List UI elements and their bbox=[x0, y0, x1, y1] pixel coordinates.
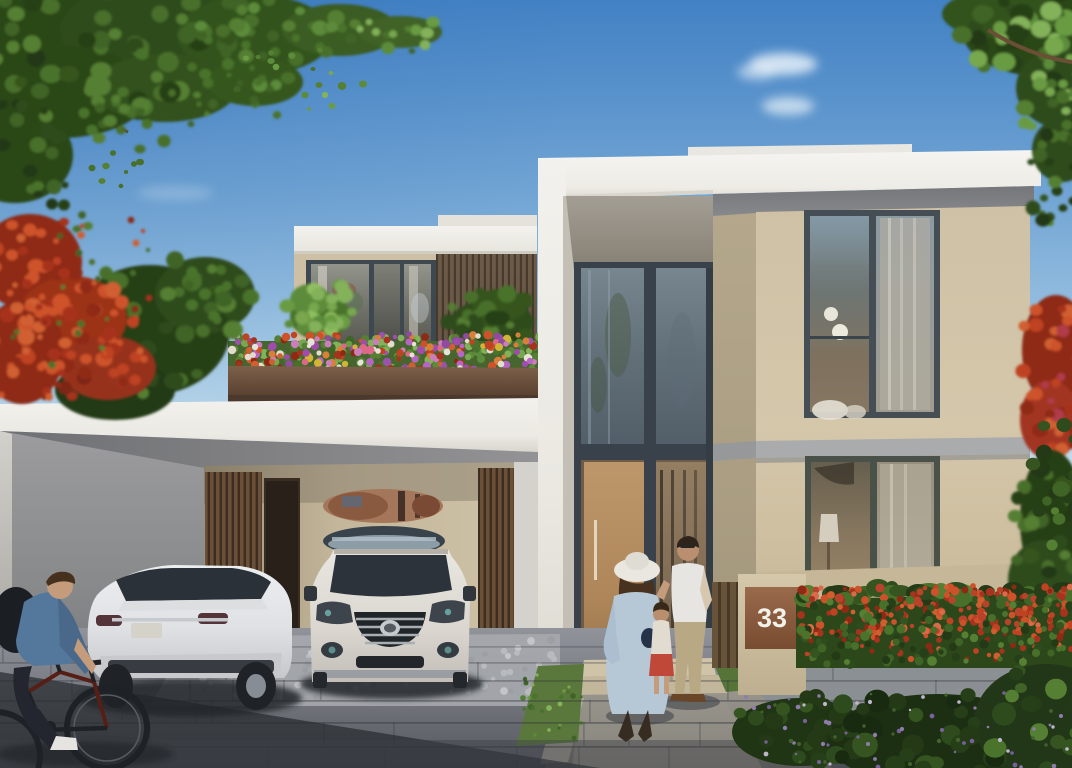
svg-text:33: 33 bbox=[757, 603, 787, 633]
